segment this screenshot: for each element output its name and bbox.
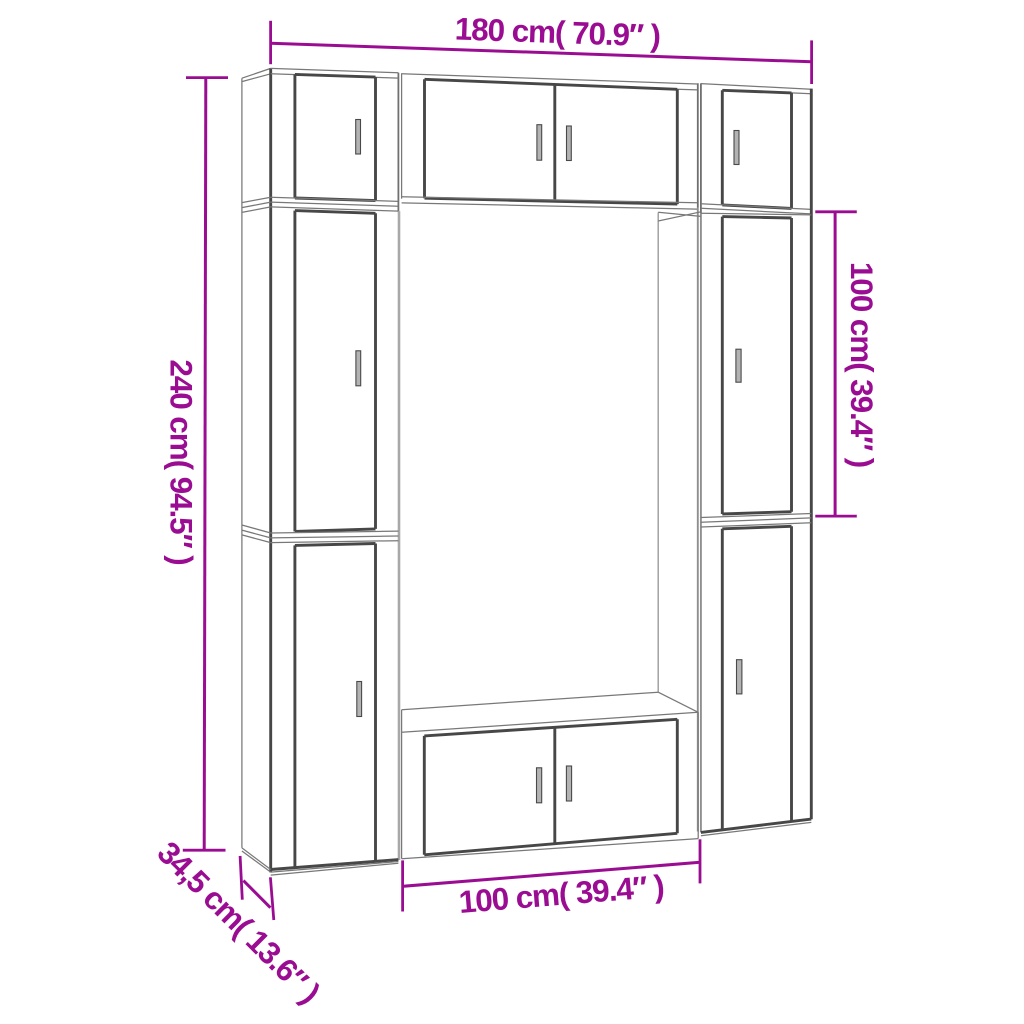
svg-text:100 cm( 39.4″ ): 100 cm( 39.4″ ): [844, 262, 880, 467]
svg-text:240 cm( 94.5″ ): 240 cm( 94.5″ ): [164, 359, 200, 564]
svg-text:180 cm( 70.9″ ): 180 cm( 70.9″ ): [454, 10, 660, 53]
